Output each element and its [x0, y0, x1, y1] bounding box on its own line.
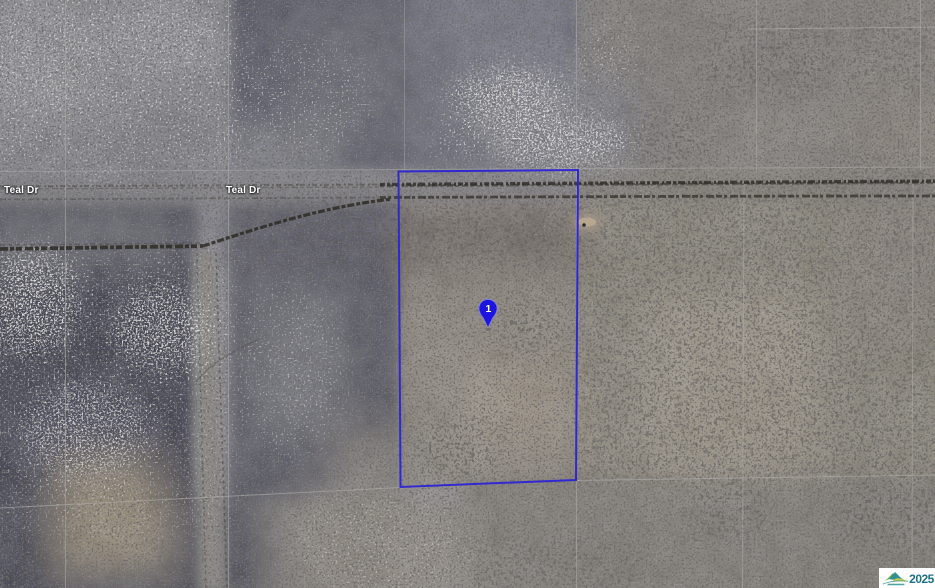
svg-text:1: 1	[485, 303, 491, 315]
